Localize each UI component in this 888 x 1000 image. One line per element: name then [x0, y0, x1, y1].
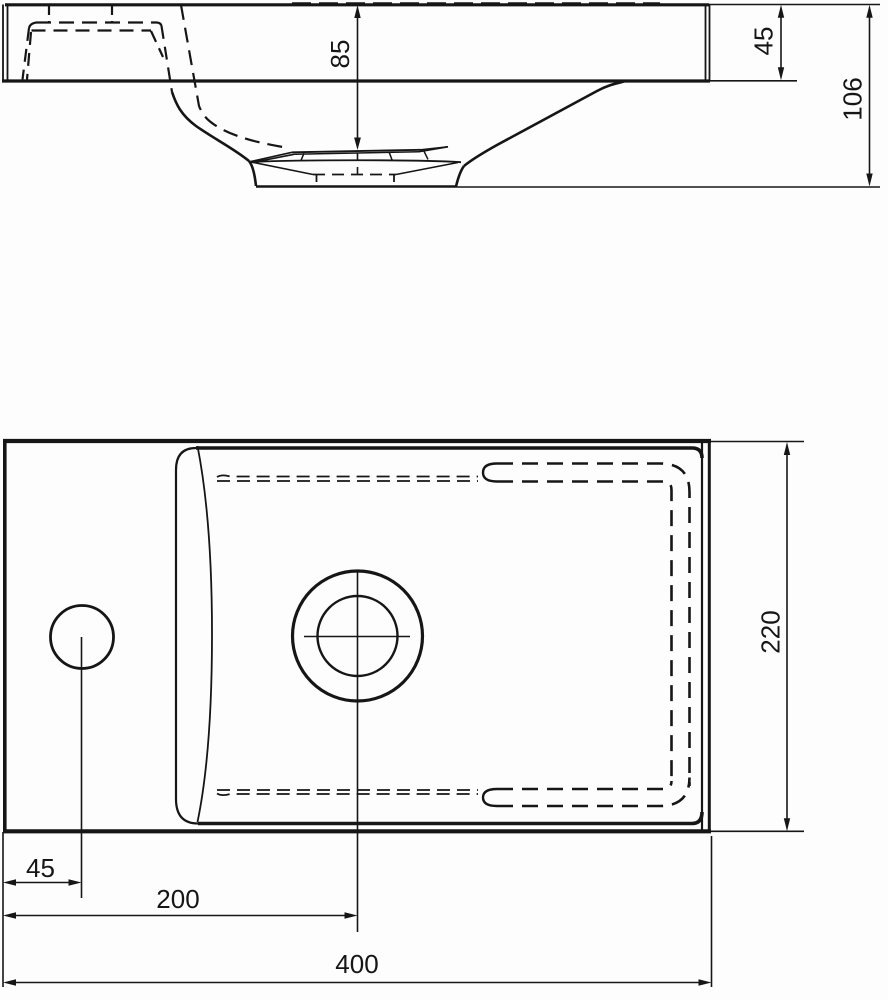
svg-text:85: 85 [325, 40, 355, 69]
svg-text:45: 45 [749, 27, 779, 56]
svg-text:200: 200 [156, 884, 199, 914]
svg-text:220: 220 [756, 610, 786, 653]
svg-text:106: 106 [838, 77, 868, 120]
svg-text:45: 45 [26, 853, 55, 883]
svg-text:400: 400 [335, 949, 378, 979]
